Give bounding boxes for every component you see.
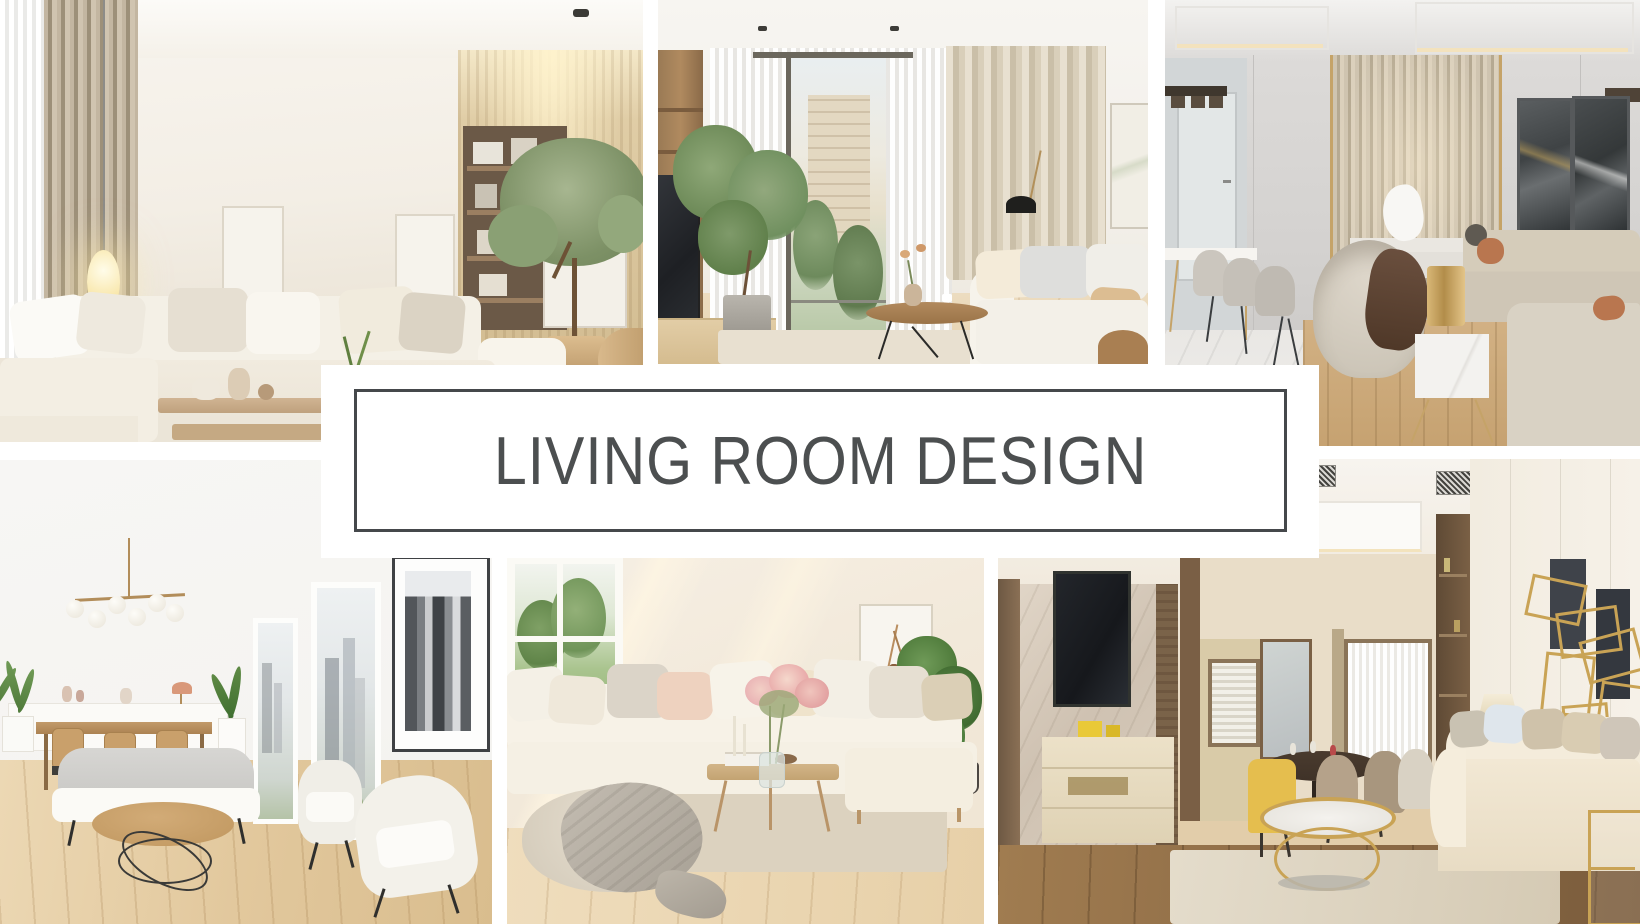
drawer-seam (1042, 767, 1174, 769)
window-blinds (1208, 659, 1260, 747)
pendant-light (1165, 86, 1227, 96)
armchair (298, 760, 362, 844)
bottle (1444, 558, 1450, 572)
view-building (262, 663, 272, 753)
sofa-pillow (547, 674, 606, 726)
collage: LIVING ROOM DESIGN (0, 0, 1640, 924)
media-shelf (658, 108, 703, 112)
plant-pot (2, 716, 34, 752)
ceiling-recess (1415, 2, 1634, 54)
city-poster (392, 556, 490, 752)
window-frame (753, 52, 913, 58)
shelf-board (1439, 574, 1467, 577)
pendant-shade (1191, 96, 1205, 108)
sofa-pillow (869, 666, 929, 718)
side-table (1098, 330, 1148, 364)
flower-blossom (795, 678, 829, 708)
page-title: LIVING ROOM DESIGN (494, 422, 1147, 500)
sofa-pillow-terracotta (1477, 238, 1504, 264)
tv-cabinet (1042, 737, 1174, 843)
spotlight-icon (890, 26, 899, 31)
sofa-ottoman (0, 416, 138, 442)
title-banner: LIVING ROOM DESIGN (321, 365, 1319, 558)
dining-chair (1398, 749, 1434, 809)
spotlight-icon (573, 9, 589, 17)
dining-chair (1255, 266, 1295, 316)
sofa-pillow (920, 672, 973, 721)
pendant-cord (103, 0, 105, 252)
cove-light (1417, 48, 1628, 52)
credenza-decor (76, 690, 84, 702)
wood-trim (998, 579, 1020, 846)
chandelier-stem (128, 538, 130, 598)
wine-glass (1290, 743, 1296, 755)
chandelier-globe (108, 596, 126, 614)
tree-foliage (488, 205, 558, 267)
armchair-cushion (375, 819, 456, 869)
books (479, 274, 507, 296)
view-building (274, 683, 282, 753)
sofa-pillow (1020, 246, 1092, 298)
balcony-rail (790, 300, 886, 303)
coffee-table-top (158, 398, 342, 413)
armchair-cushion (306, 792, 354, 822)
cove-light (1177, 44, 1323, 48)
wall-art-frame (1110, 103, 1148, 229)
photo-top-middle (658, 0, 1148, 364)
sofa-pillow (1521, 708, 1567, 750)
mirror-panel (1260, 639, 1312, 760)
credenza-decor (120, 688, 132, 704)
chair-leg (1260, 833, 1263, 857)
coffee-table-base (1278, 875, 1370, 891)
side-table-gold (1588, 810, 1640, 924)
shelf-board (1439, 694, 1467, 697)
pendant-shade (1171, 96, 1185, 108)
sofa-leg (857, 810, 861, 824)
plant-ficus-foliage (698, 200, 768, 275)
sofa-pillow (75, 291, 147, 356)
sofa-pillow-blush (657, 672, 713, 720)
shelf-board (1439, 634, 1467, 637)
sofa-leg (957, 808, 961, 822)
window-mullion (515, 636, 615, 642)
window (253, 618, 298, 824)
brass-table-lamp (1427, 266, 1465, 326)
vase (904, 284, 922, 306)
sofa-corner (1507, 303, 1640, 446)
books (473, 142, 503, 164)
chandelier-globe (128, 608, 146, 626)
table-decor (228, 368, 250, 400)
chandelier-globe (166, 604, 184, 622)
chandelier-globe (66, 600, 84, 618)
candle (743, 724, 746, 756)
cup (942, 294, 952, 302)
plant-leaf (900, 250, 910, 258)
sofa-pillow (398, 291, 467, 354)
table-lamp-stem (180, 694, 182, 704)
books (475, 184, 497, 208)
yellow-decor (1106, 725, 1120, 737)
door-handle (1223, 180, 1231, 183)
table-decor (258, 384, 274, 400)
rug (718, 330, 978, 364)
coffee-table-top (866, 302, 988, 324)
sofa-pillow (1600, 717, 1640, 761)
bottle (1454, 620, 1460, 632)
yellow-decor (1078, 721, 1102, 737)
photo-bottom-middle (507, 556, 984, 924)
sofa-pillow (246, 292, 320, 354)
sofa-chaise (845, 748, 973, 812)
table-decor (192, 378, 220, 400)
credenza-decor (62, 686, 72, 702)
floor-lamp-dome (1006, 196, 1036, 213)
view-building (355, 678, 365, 788)
sofa-pillow-blue (1483, 704, 1528, 745)
tv-screen (1053, 571, 1131, 707)
pendant-shade (1209, 96, 1223, 108)
wine-glass (1310, 741, 1316, 753)
door-frame-wood (1180, 519, 1200, 821)
flower-greenery (759, 690, 799, 718)
table-leg (44, 734, 48, 790)
curtain-drapes (946, 46, 1106, 280)
chandelier-bar (75, 593, 185, 602)
side-table-shelf (1591, 867, 1635, 870)
candle (733, 716, 736, 756)
plant-leaf (225, 666, 243, 721)
sofa-pillow (168, 288, 248, 352)
poster-image (405, 571, 471, 731)
cabinet-recess (1068, 777, 1128, 795)
chandelier-globe (148, 594, 166, 612)
tree-foliage (598, 195, 643, 253)
table-lamp (172, 682, 192, 694)
drawer-seam (1042, 807, 1174, 809)
abstract-art-panel (1572, 96, 1630, 238)
sofa-armrest (1430, 749, 1466, 847)
view-tree (833, 225, 883, 320)
marble-cube-table (1415, 334, 1489, 398)
abstract-art-panel (1517, 98, 1573, 236)
plant-leaf (916, 244, 926, 252)
banner-border: LIVING ROOM DESIGN (354, 389, 1287, 532)
spotlight-icon (758, 26, 767, 31)
glass-vase (759, 752, 785, 788)
chandelier-globe (88, 610, 106, 628)
